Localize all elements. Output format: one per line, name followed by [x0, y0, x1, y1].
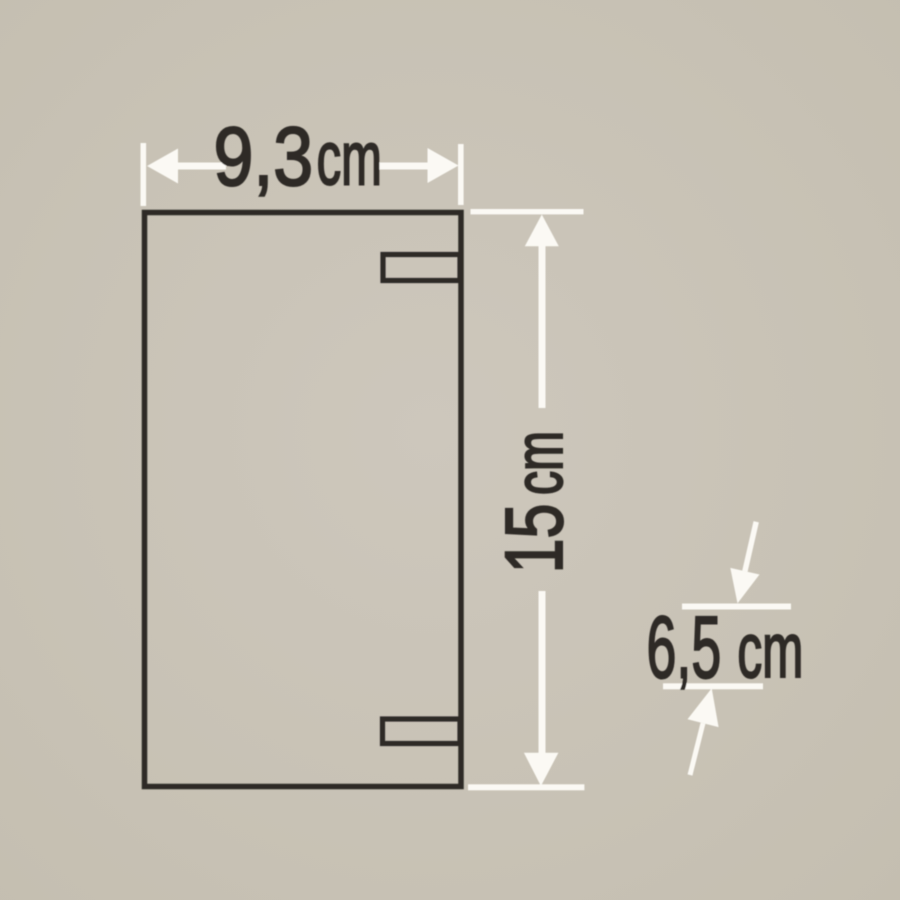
svg-text:9,3: 9,3 [213, 109, 313, 204]
svg-text:cm: cm [502, 431, 577, 495]
svg-text:6,5: 6,5 [647, 599, 722, 697]
svg-text:cm: cm [737, 607, 803, 694]
svg-text:cm: cm [317, 116, 382, 202]
svg-text:15: 15 [489, 504, 580, 574]
